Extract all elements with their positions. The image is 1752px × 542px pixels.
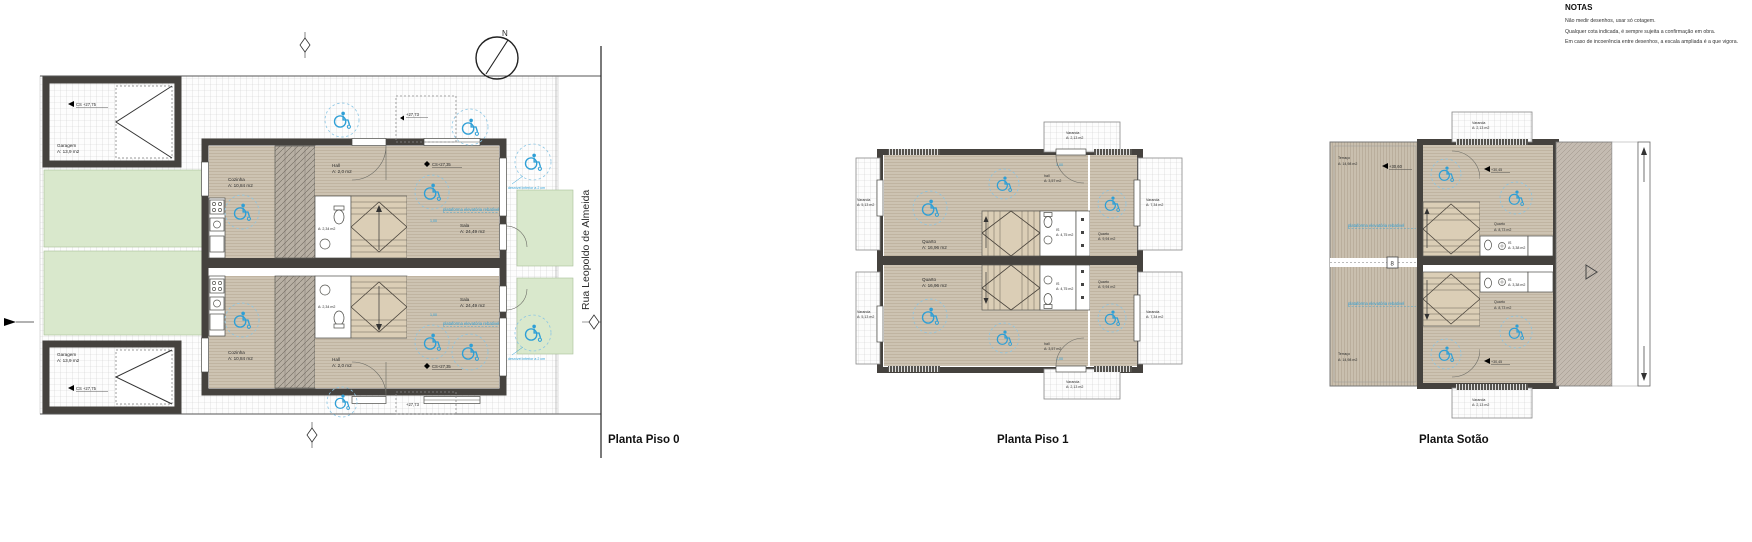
svg-text:Varanda: Varanda	[1066, 131, 1079, 135]
window-shutter-band	[1094, 149, 1132, 155]
unit-bottom: Cozinha A: 10,84 m2 Hall A: 2,0 m2 A: 2,…	[209, 276, 499, 388]
section-marker-top	[300, 32, 310, 58]
svg-text:A: 16,96 m2: A: 16,96 m2	[922, 283, 947, 288]
entry-door-gap	[1056, 149, 1086, 155]
section-marker-bottom	[307, 422, 317, 448]
svg-text:IS: IS	[1056, 282, 1060, 286]
stairs	[982, 211, 1040, 256]
roof-area	[1556, 142, 1650, 386]
wc-area: A: 2,34 m2	[318, 305, 335, 309]
svg-text:Quarto: Quarto	[1098, 232, 1109, 236]
entry-door-gap	[352, 139, 386, 146]
sala-label: Sala	[460, 223, 470, 228]
cozinha-window	[202, 162, 209, 196]
varanda-left-top: Varanda A: 5,13 m2	[856, 158, 880, 250]
svg-text:A: 4,75 m2: A: 4,75 m2	[1056, 287, 1073, 291]
terraco-area: A: 14,98 m2	[1338, 162, 1357, 166]
terraco-label: Terraço	[1338, 352, 1350, 356]
varanda-entry-bottom: Varanda A: 2,13 m2	[1044, 369, 1120, 399]
shaft	[1528, 236, 1553, 256]
terraco-area: A: 14,98 m2	[1338, 358, 1357, 362]
svg-text:Varanda: Varanda	[1066, 380, 1079, 384]
garage-door-zone	[116, 86, 172, 158]
svg-text:A: 2,13 m2: A: 2,13 m2	[1066, 385, 1083, 389]
room-quarto	[1480, 145, 1553, 236]
cozinha-label: Cozinha	[228, 350, 245, 355]
party-wall	[205, 258, 503, 268]
north-label: N	[502, 29, 508, 38]
varanda-left-bottom: Varanda A: 5,13 m2	[856, 272, 880, 364]
sink-icon	[210, 297, 224, 310]
garage-top-area: A: 13,9 m2	[57, 149, 80, 154]
plan-sotao: 8 Terraço A: 14,98 m2 Terraço A: 14,98 m…	[1330, 112, 1650, 446]
terraco-label: Terraço	[1338, 156, 1350, 160]
svg-text:Varanda: Varanda	[857, 310, 870, 314]
cozinha-area: A: 10,84 m2	[228, 356, 253, 361]
window-shutter-band	[1456, 384, 1528, 390]
svg-text:Quarto: Quarto	[1494, 300, 1505, 304]
svg-text:A: 8,73 m2: A: 8,73 m2	[1494, 306, 1511, 310]
entry-level-top: +27,73	[406, 112, 420, 117]
sink-icon	[210, 218, 224, 231]
cozinha-label: Cozinha	[228, 177, 245, 182]
fridge-icon	[210, 236, 224, 252]
varanda-door-gap	[877, 180, 883, 216]
toilet-icon	[1485, 278, 1492, 288]
garden-left-top	[44, 170, 218, 247]
garage-top-level: CS +27,75	[76, 102, 97, 107]
unit-top: Quarto A: 16,96 m2 hall A: 3,57 m2 1,00 …	[877, 149, 1140, 256]
svg-text:A: 3,57 m2: A: 3,57 m2	[1044, 347, 1061, 351]
title-piso0: Planta Piso 0	[608, 434, 680, 446]
svg-text:A: 9,94 m2: A: 9,94 m2	[1098, 285, 1115, 289]
note-line: Não medir desenhos, usar só cotagem.	[1565, 19, 1750, 25]
hall-area: A: 2,0 m2	[332, 169, 352, 174]
window-shutter-band	[1094, 366, 1132, 372]
note-line: Em caso de incoerência entre desenhos, a…	[1565, 40, 1750, 46]
plan-piso0: Garagem A: 13,9 m2 CS +27,75 Garagem A: …	[4, 29, 680, 458]
unit-bottom: Quarto A: 16,96 m2 hall A: 3,57 m2 1,00 …	[877, 265, 1140, 372]
stairs	[351, 196, 407, 258]
north-compass-icon: N	[476, 29, 518, 79]
platform-note: plataforma elevatória rebatível	[1348, 223, 1404, 228]
step-note: desnível inferior a 2 cm	[508, 357, 545, 361]
varanda-door-gap	[877, 306, 883, 342]
stairs	[1423, 202, 1480, 256]
garden-right-top	[517, 190, 573, 266]
svg-text:IS: IS	[1056, 228, 1060, 232]
garden-left-bottom	[44, 251, 218, 335]
window-right	[1134, 180, 1140, 226]
platform-note: plataforma elevatória rebatível	[1348, 301, 1404, 306]
unit-bottom: Quarto A: 8,73 m2 +30,45 IS A: 3,38 m2	[1423, 272, 1553, 390]
garage-bottom: Garagem A: 13,9 m2 CS +27,75	[46, 344, 178, 410]
quarto-level: +30,45	[1491, 168, 1502, 172]
sala-level: CS+27,35	[432, 162, 451, 167]
varanda-entry-top: Varanda A: 2,13 m2	[1044, 122, 1120, 152]
floor-plan-drawing: Garagem A: 13,9 m2 CS +27,75 Garagem A: …	[0, 0, 1752, 542]
plan-piso1: Varanda A: 5,13 m2 Varanda A: 5,13 m2 Va…	[856, 122, 1182, 446]
room-sala	[407, 146, 499, 258]
svg-text:hall: hall	[1044, 342, 1050, 346]
sala-area: A: 24,49 m2	[460, 303, 485, 308]
sala-door-right	[500, 224, 507, 250]
stairs	[1423, 272, 1480, 326]
svg-text:A: 3,57 m2: A: 3,57 m2	[1044, 179, 1061, 183]
entry-door-gap	[1056, 366, 1086, 372]
section-marker-left	[4, 318, 34, 326]
cozinha-window	[202, 338, 209, 372]
svg-text:Quarto: Quarto	[922, 239, 936, 244]
dimension-label: 1,00	[430, 219, 437, 223]
svg-text:A: 8,73 m2: A: 8,73 m2	[1494, 228, 1511, 232]
garage-top: Garagem A: 13,9 m2 CS +27,75	[46, 80, 178, 164]
svg-text:A: 7,34 m2: A: 7,34 m2	[1146, 315, 1163, 319]
platform-note: plataforma elevatória rebatível	[443, 321, 499, 326]
terraco-level: +30,60	[1389, 164, 1403, 169]
note-line: Qualquer cota indicada, é sempre sujeita…	[1565, 30, 1750, 36]
svg-text:Quarto: Quarto	[1098, 280, 1109, 284]
sala-door-right	[500, 286, 507, 312]
dimension-label: 1,00	[430, 313, 437, 317]
varanda-bottom: Varanda A: 2,13 m2	[1452, 388, 1532, 418]
svg-text:A: 16,96 m2: A: 16,96 m2	[922, 245, 947, 250]
svg-text:Varanda: Varanda	[1472, 121, 1485, 125]
varanda-right-top: Varanda A: 7,34 m2	[1138, 158, 1182, 250]
step-note: desnível inferior a 2 cm	[508, 186, 545, 190]
svg-text:A: 2,13 m2: A: 2,13 m2	[1066, 136, 1083, 140]
svg-text:Quarto: Quarto	[1494, 222, 1505, 226]
svg-text:IS: IS	[1508, 241, 1512, 245]
shaft	[1528, 272, 1553, 292]
architectural-drawing-sheet: Garagem A: 13,9 m2 CS +27,75 Garagem A: …	[0, 0, 1752, 542]
unit-top: Cozinha A: 10,84 m2 Hall A: 2,0 m2 A: 2,…	[209, 146, 499, 258]
stairs	[982, 265, 1040, 310]
stove-icon	[210, 200, 224, 214]
svg-text:A: 4,75 m2: A: 4,75 m2	[1056, 233, 1073, 237]
room-hall	[315, 146, 407, 196]
fridge-icon	[210, 314, 224, 330]
section-marker-right	[582, 315, 601, 329]
window-shutter-band	[888, 149, 940, 155]
svg-text:Varanda: Varanda	[1146, 310, 1159, 314]
notes-block: NOTAS Não medir desenhos, usar só cotage…	[1565, 3, 1750, 51]
sala-window-right	[500, 158, 507, 216]
svg-text:IS: IS	[1508, 278, 1512, 282]
garage-bottom-area: A: 13,9 m2	[57, 358, 80, 363]
garage-bottom-level: CS +27,75	[76, 386, 97, 391]
toilet-icon	[1044, 294, 1052, 305]
terraco-block: 8 Terraço A: 14,98 m2 Terraço A: 14,98 m…	[1330, 142, 1420, 386]
sala-area: A: 24,49 m2	[460, 229, 485, 234]
quarto-level: +30,45	[1491, 360, 1502, 364]
hall-area: A: 2,0 m2	[332, 363, 352, 368]
party-wall	[880, 256, 1140, 265]
title-piso1: Planta Piso 1	[997, 434, 1069, 446]
stairs	[351, 276, 407, 338]
platform-note: plataforma elevatória rebatível	[443, 207, 499, 212]
notes-title: NOTAS	[1565, 3, 1750, 12]
toilet-icon	[334, 210, 344, 224]
sala-level: CS+27,35	[432, 364, 451, 369]
svg-text:A: 9,94 m2: A: 9,94 m2	[1098, 237, 1115, 241]
party-wall	[1420, 256, 1556, 265]
toilet-icon	[1044, 217, 1052, 228]
garage-bottom-label: Garagem	[57, 352, 76, 357]
cozinha-area: A: 10,84 m2	[228, 183, 253, 188]
sala-window-right	[500, 318, 507, 376]
svg-text:Varanda: Varanda	[1472, 398, 1485, 402]
stove-icon	[210, 279, 224, 293]
svg-text:A: 2,13 m2: A: 2,13 m2	[1472, 403, 1489, 407]
garden-right-bottom	[517, 278, 573, 354]
hall-label: Hall	[332, 163, 340, 168]
hall-label: Hall	[332, 357, 340, 362]
varanda-top: Varanda A: 2,13 m2	[1452, 112, 1532, 142]
window-right	[1134, 295, 1140, 341]
svg-text:A: 3,38 m2: A: 3,38 m2	[1508, 283, 1525, 287]
toilet-icon	[1485, 240, 1492, 250]
svg-text:A: 7,34 m2: A: 7,34 m2	[1146, 203, 1163, 207]
garage-top-label: Garagem	[57, 143, 76, 148]
svg-text:Quarto: Quarto	[922, 277, 936, 282]
toilet-icon	[334, 311, 344, 325]
title-sotao: Planta Sotão	[1419, 434, 1489, 446]
svg-text:A: 5,13 m2: A: 5,13 m2	[857, 315, 874, 319]
svg-text:A: 5,13 m2: A: 5,13 m2	[857, 203, 874, 207]
unit-top: Quarto A: 8,73 m2 +30,45 IS A: 3,38 m2	[1423, 139, 1553, 256]
svg-text:hall: hall	[1044, 174, 1050, 178]
garage-door-zone	[116, 350, 172, 404]
varanda-right-bottom: Varanda A: 7,34 m2	[1138, 272, 1182, 364]
window-shutter-band	[888, 366, 940, 372]
svg-text:A: 3,38 m2: A: 3,38 m2	[1508, 246, 1525, 250]
sala-label: Sala	[460, 297, 470, 302]
wc-area: A: 2,34 m2	[318, 227, 335, 231]
svg-text:Varanda: Varanda	[1146, 198, 1159, 202]
svg-text:A: 2,13 m2: A: 2,13 m2	[1472, 126, 1489, 130]
street-name: Rua Leopoldo de Almeida	[580, 190, 592, 310]
room-sala	[407, 276, 499, 388]
svg-text:Varanda: Varanda	[857, 198, 870, 202]
window-shutter-band	[1456, 139, 1528, 145]
entry-level-bottom: +27,73	[406, 402, 420, 407]
